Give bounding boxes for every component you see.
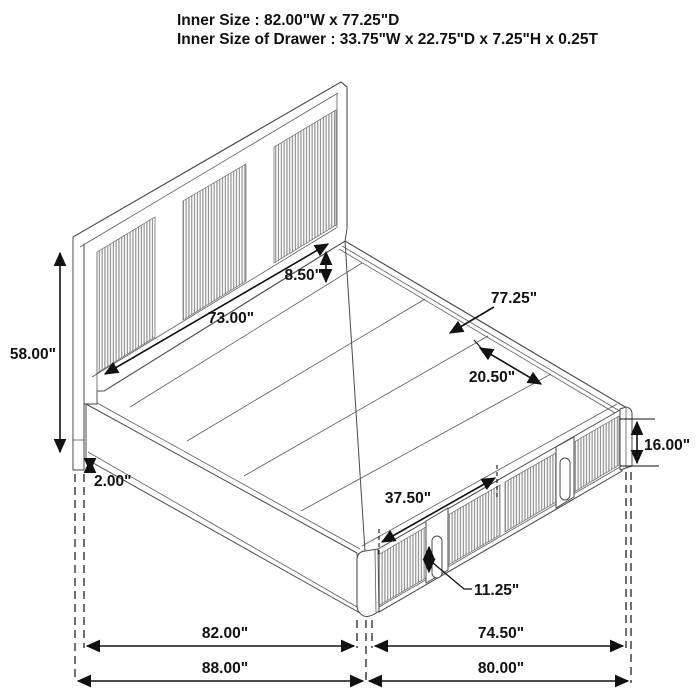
dim-label: 37.50" [385,490,431,507]
dim-label: 80.00" [478,660,524,677]
dim-label: 77.25" [491,290,537,307]
dim-label: 16.00" [644,437,690,454]
dim-label: 2.00" [94,473,132,490]
title-line-1: Inner Size : 82.00"W x 77.25"D [177,12,399,29]
bed-dimension-diagram-page: Inner Size : 82.00"W x 77.25"D Inner Siz… [0,0,700,700]
dim-label: 82.00" [202,625,248,642]
dim-label: 20.50" [469,369,515,386]
dim-label: 74.50" [478,625,524,642]
title-line-2: Inner Size of Drawer : 33.75"W x 22.75"D… [177,31,598,48]
deck-right-inner-1 [342,246,623,413]
deck-panel-line-2 [244,336,488,476]
dim-overall-depth: 80.00" [369,660,628,681]
diagram-title: Inner Size : 82.00"W x 77.25"D Inner Siz… [177,12,598,48]
bed-line-art [73,82,632,683]
dim-label: 88.00" [202,660,248,677]
dim-label: 73.00" [208,310,254,327]
drawer-handle [432,536,442,578]
bed-dimension-diagram: Inner Size : 82.00"W x 77.25"D Inner Siz… [0,0,700,700]
dim-label: 8.50" [284,267,322,284]
dim-platform-inner-depth: 77.25" [450,290,537,333]
dim-inner-width: 82.00" [87,625,354,646]
deck-right-inner-2 [339,249,620,416]
side-rail [86,399,360,613]
drawer-handle [560,458,570,500]
dim-label: 58.00" [10,346,56,363]
dim-overall-width: 88.00" [78,660,363,681]
side-rail-face [86,404,360,613]
dim-side-inner-depth: 74.50" [375,625,623,646]
dim-headboard-height: 58.00" [10,253,60,452]
dim-label: 11.25" [474,582,519,599]
